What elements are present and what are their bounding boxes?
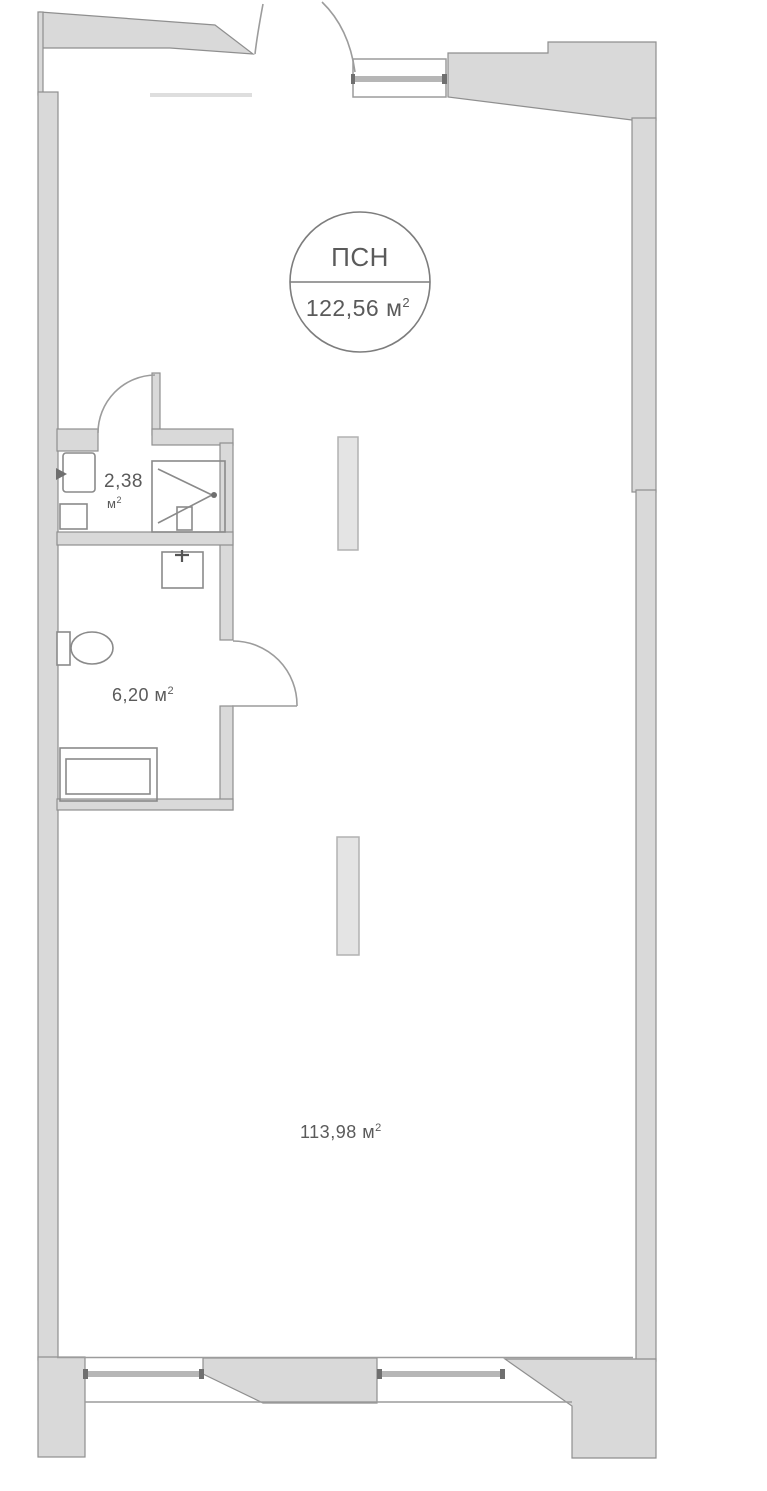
wall-corner-bottom-right	[505, 1359, 656, 1458]
partition-walls	[57, 373, 233, 810]
columns	[337, 437, 359, 955]
floor-plan-page: ПСН 122,56 м2 2,38 м2 6,20 м2 113,98 м2	[0, 0, 767, 1491]
wc-area-label: 6,20 м2	[112, 685, 174, 705]
column-lower	[337, 837, 359, 955]
wall-pier-bottom-mid	[203, 1358, 377, 1403]
bottom-window-tick-4	[500, 1369, 505, 1379]
bathroom-door-stub	[152, 373, 160, 435]
entrance-door	[255, 2, 355, 72]
wall-top-right-lintel	[448, 42, 656, 120]
toilet-tank	[57, 632, 70, 665]
bathroom-unit-sup: 2	[116, 495, 122, 505]
bathroom-unit: м	[107, 496, 116, 511]
unit-badge-title: ПСН	[331, 242, 389, 272]
bathroom-cabinet	[60, 504, 87, 529]
wall-between-bath-wc	[57, 532, 233, 545]
wall-right-upper	[632, 118, 656, 492]
wc-area-value: 6,20	[112, 685, 149, 705]
main-area-value: 113,98	[300, 1122, 357, 1142]
main-area-label: 113,98 м2	[300, 1122, 382, 1142]
unit-badge: ПСН 122,56 м2	[290, 212, 430, 352]
shower-stand	[177, 507, 192, 530]
toilet-bowl	[71, 632, 113, 664]
wc-area-unit: м	[149, 685, 167, 705]
bathroom-sink	[63, 453, 95, 492]
wall-right-lower	[636, 490, 656, 1361]
bathroom-area-label: 2,38	[104, 471, 143, 492]
entrance-door-swing-arc	[322, 2, 355, 72]
wall-left	[38, 92, 58, 1360]
floor-plan-canvas: ПСН 122,56 м2 2,38 м2 6,20 м2 113,98 м2	[0, 0, 767, 1491]
wall-left-thin-top	[38, 12, 43, 95]
bathroom-door	[98, 375, 155, 433]
shower-drain-dot	[211, 492, 217, 498]
column-upper	[338, 437, 358, 550]
main-area-unit: м	[357, 1122, 375, 1142]
unit-badge-area-unit: м	[379, 295, 402, 321]
wall-top-left	[40, 12, 253, 54]
unit-badge-area-value: 122,56	[306, 295, 379, 321]
bathroom-unit-label: м2	[107, 495, 122, 511]
top-window	[351, 59, 447, 97]
entrance-door-leaf	[255, 4, 263, 54]
wall-pier-bottom-left	[38, 1357, 85, 1457]
shower-drain-lines	[158, 469, 212, 523]
bottom-window-tick-1	[83, 1369, 88, 1379]
bathroom-door-swing-arc	[98, 375, 155, 433]
wc-area-sup: 2	[167, 685, 174, 697]
bathroom-wall-left-piece	[57, 429, 98, 451]
bathroom-fixtures	[56, 453, 225, 532]
main-area-sup: 2	[375, 1122, 382, 1134]
block-wall-right-lower	[220, 706, 233, 810]
bottom-window-tick-2	[199, 1369, 204, 1379]
bottom-window-tick-3	[377, 1369, 382, 1379]
unit-badge-area: 122,56 м2	[306, 295, 410, 321]
wc-fixtures	[57, 550, 203, 801]
unit-badge-area-sup: 2	[402, 295, 410, 310]
wc-door	[232, 641, 297, 706]
shaft-outer	[60, 748, 157, 801]
shaft-inner	[66, 759, 150, 794]
wc-door-swing-arc	[233, 641, 297, 706]
top-window-tick-left	[351, 74, 355, 84]
top-window-tick-right	[442, 74, 447, 84]
